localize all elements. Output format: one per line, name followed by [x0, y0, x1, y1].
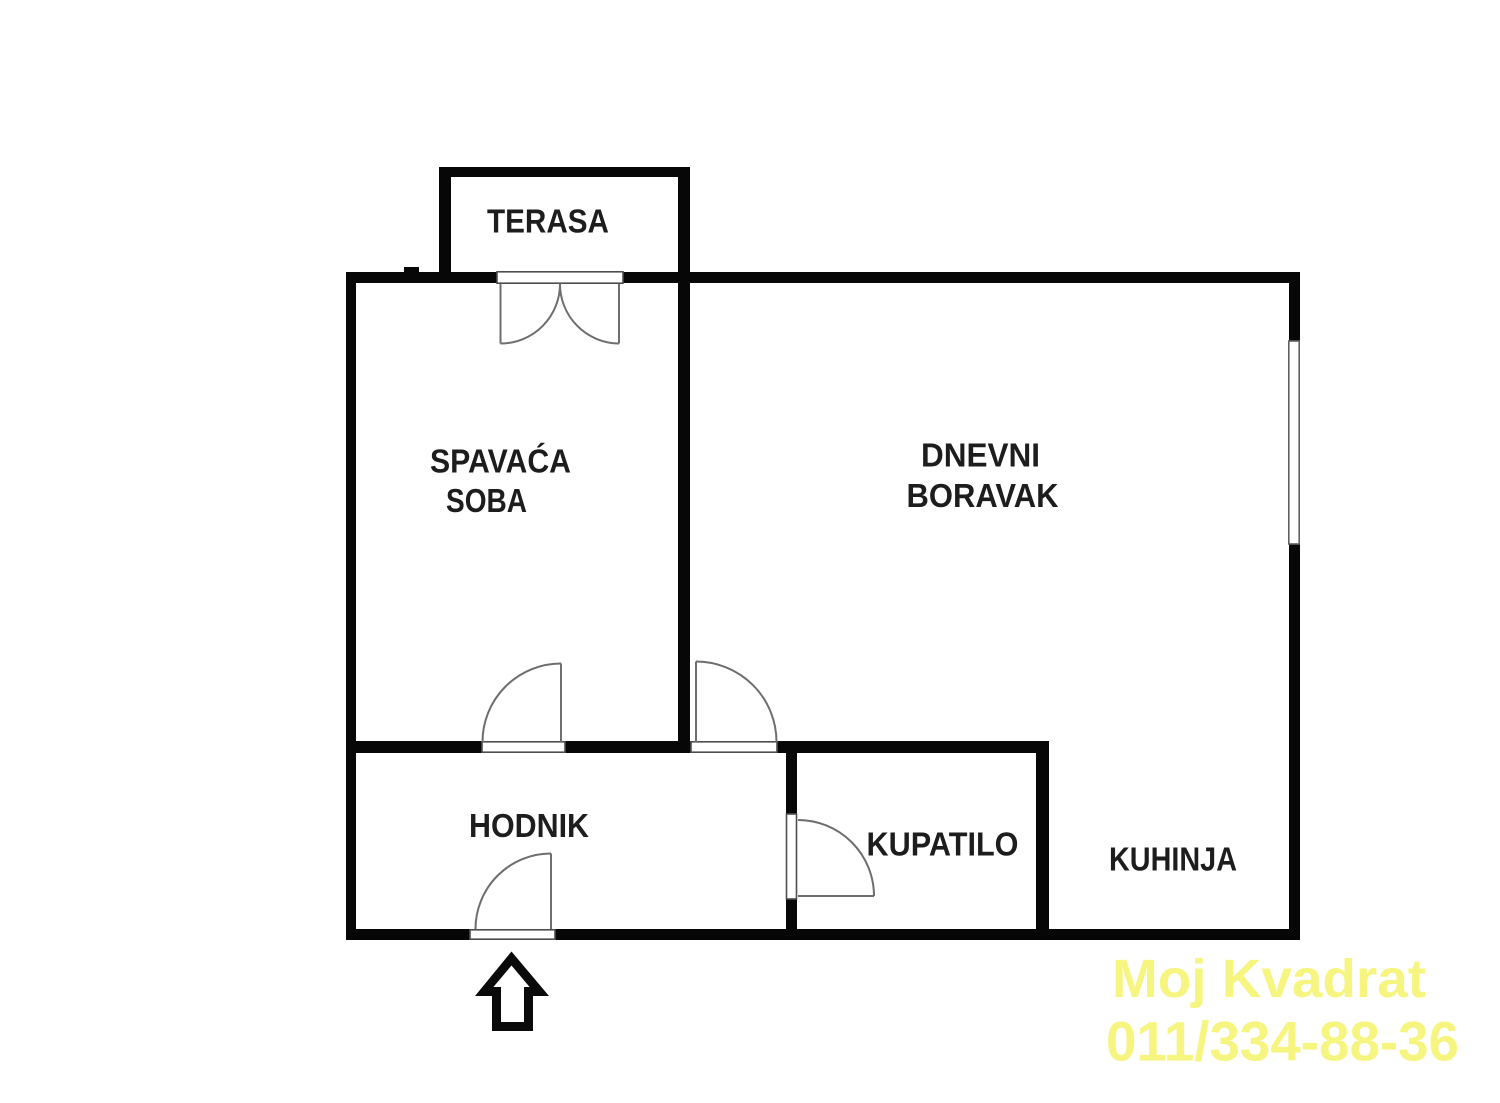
svg-text:SPAVAĆA: SPAVAĆA	[430, 443, 571, 480]
svg-text:KUHINJA: KUHINJA	[1109, 840, 1237, 877]
svg-text:TERASA: TERASA	[487, 203, 609, 240]
svg-text:BORAVAK: BORAVAK	[907, 477, 1059, 514]
svg-text:011/334-88-36: 011/334-88-36	[1106, 1010, 1459, 1073]
svg-text:SOBA: SOBA	[446, 482, 527, 519]
svg-text:DNEVNI: DNEVNI	[921, 436, 1040, 473]
svg-text:Moj Kvadrat: Moj Kvadrat	[1112, 949, 1426, 1009]
svg-text:KUPATILO: KUPATILO	[867, 826, 1019, 863]
svg-text:HODNIK: HODNIK	[469, 807, 589, 844]
